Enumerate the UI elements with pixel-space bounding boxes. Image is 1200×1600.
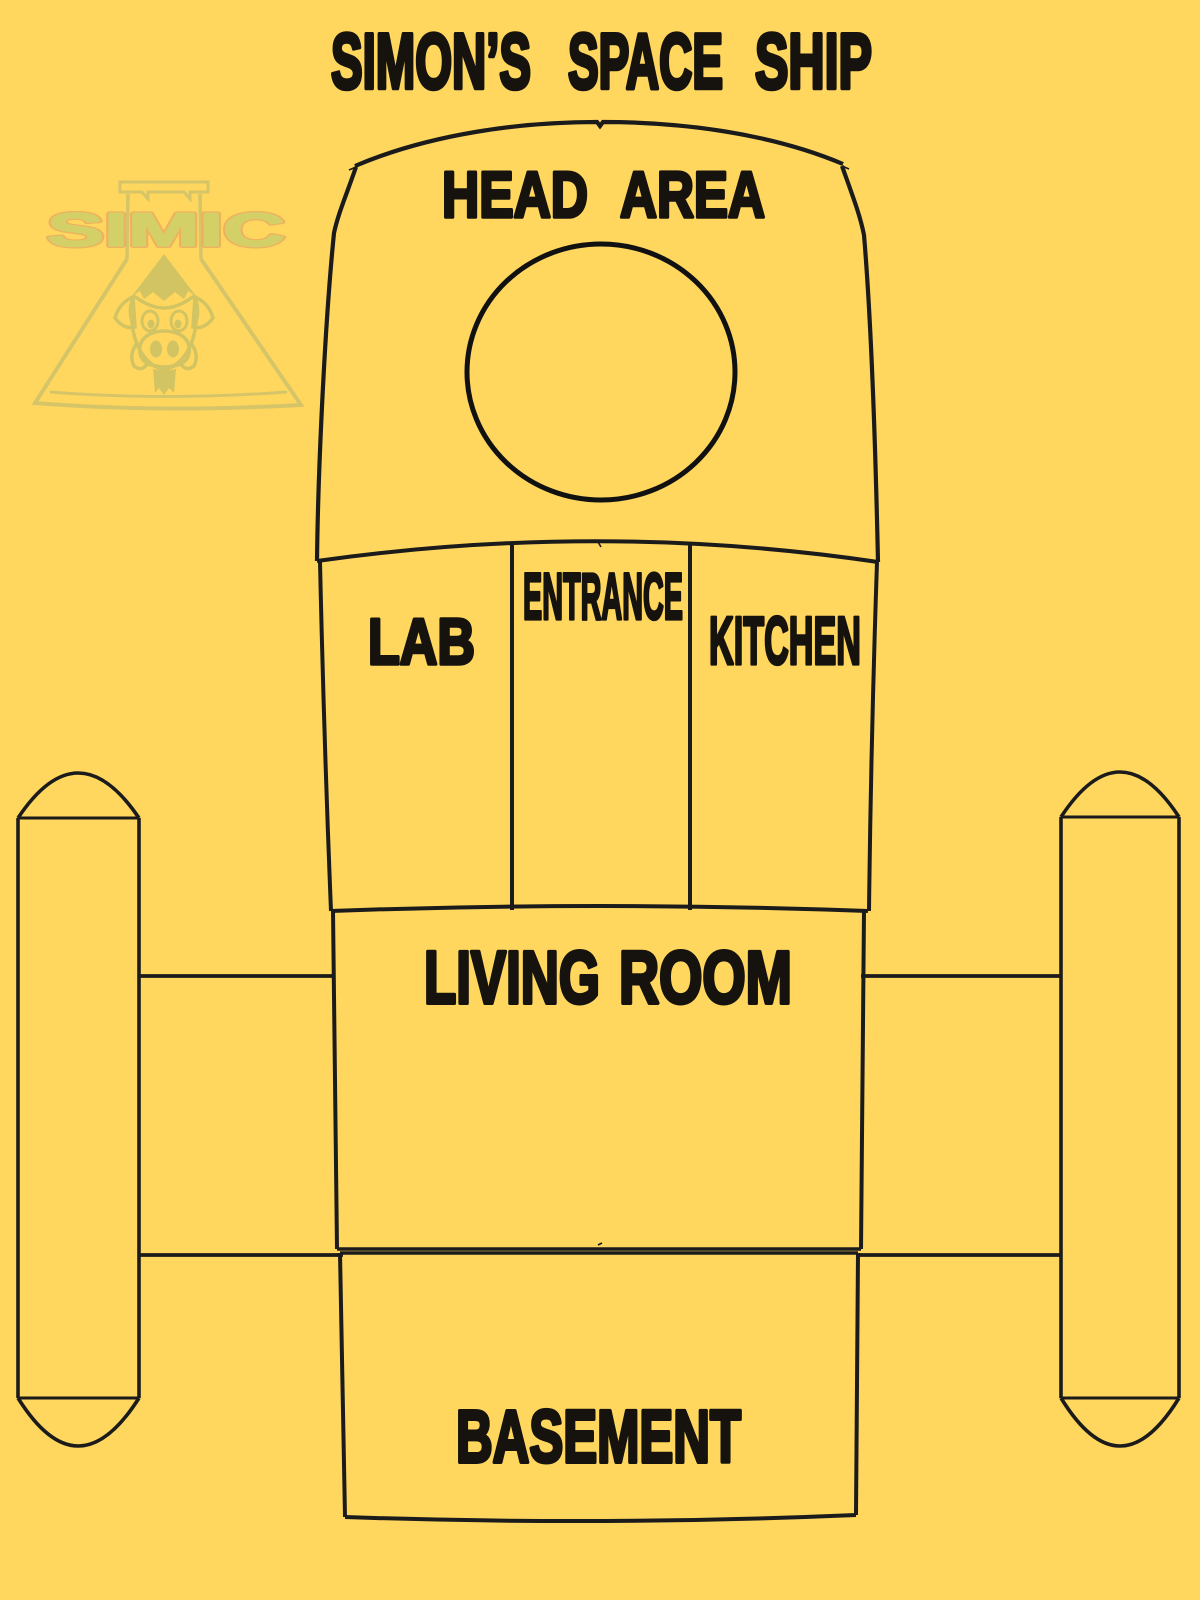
svg-text:SIMON’S: SIMON’S: [331, 17, 531, 105]
svg-text:KITCHEN: KITCHEN: [709, 603, 861, 679]
svg-text:BASEMENT: BASEMENT: [456, 1395, 741, 1478]
svg-text:AREA: AREA: [620, 158, 765, 231]
svg-text:SPACE: SPACE: [568, 17, 723, 105]
svg-text:LAB: LAB: [368, 605, 475, 678]
svg-text:SIMIC: SIMIC: [47, 203, 285, 256]
svg-text:ROOM: ROOM: [619, 936, 792, 1019]
svg-text:SHIP: SHIP: [755, 17, 872, 105]
svg-text:LIVING: LIVING: [424, 936, 600, 1019]
svg-text:ENTRANCE: ENTRANCE: [523, 559, 683, 633]
svg-text:HEAD: HEAD: [442, 158, 588, 231]
